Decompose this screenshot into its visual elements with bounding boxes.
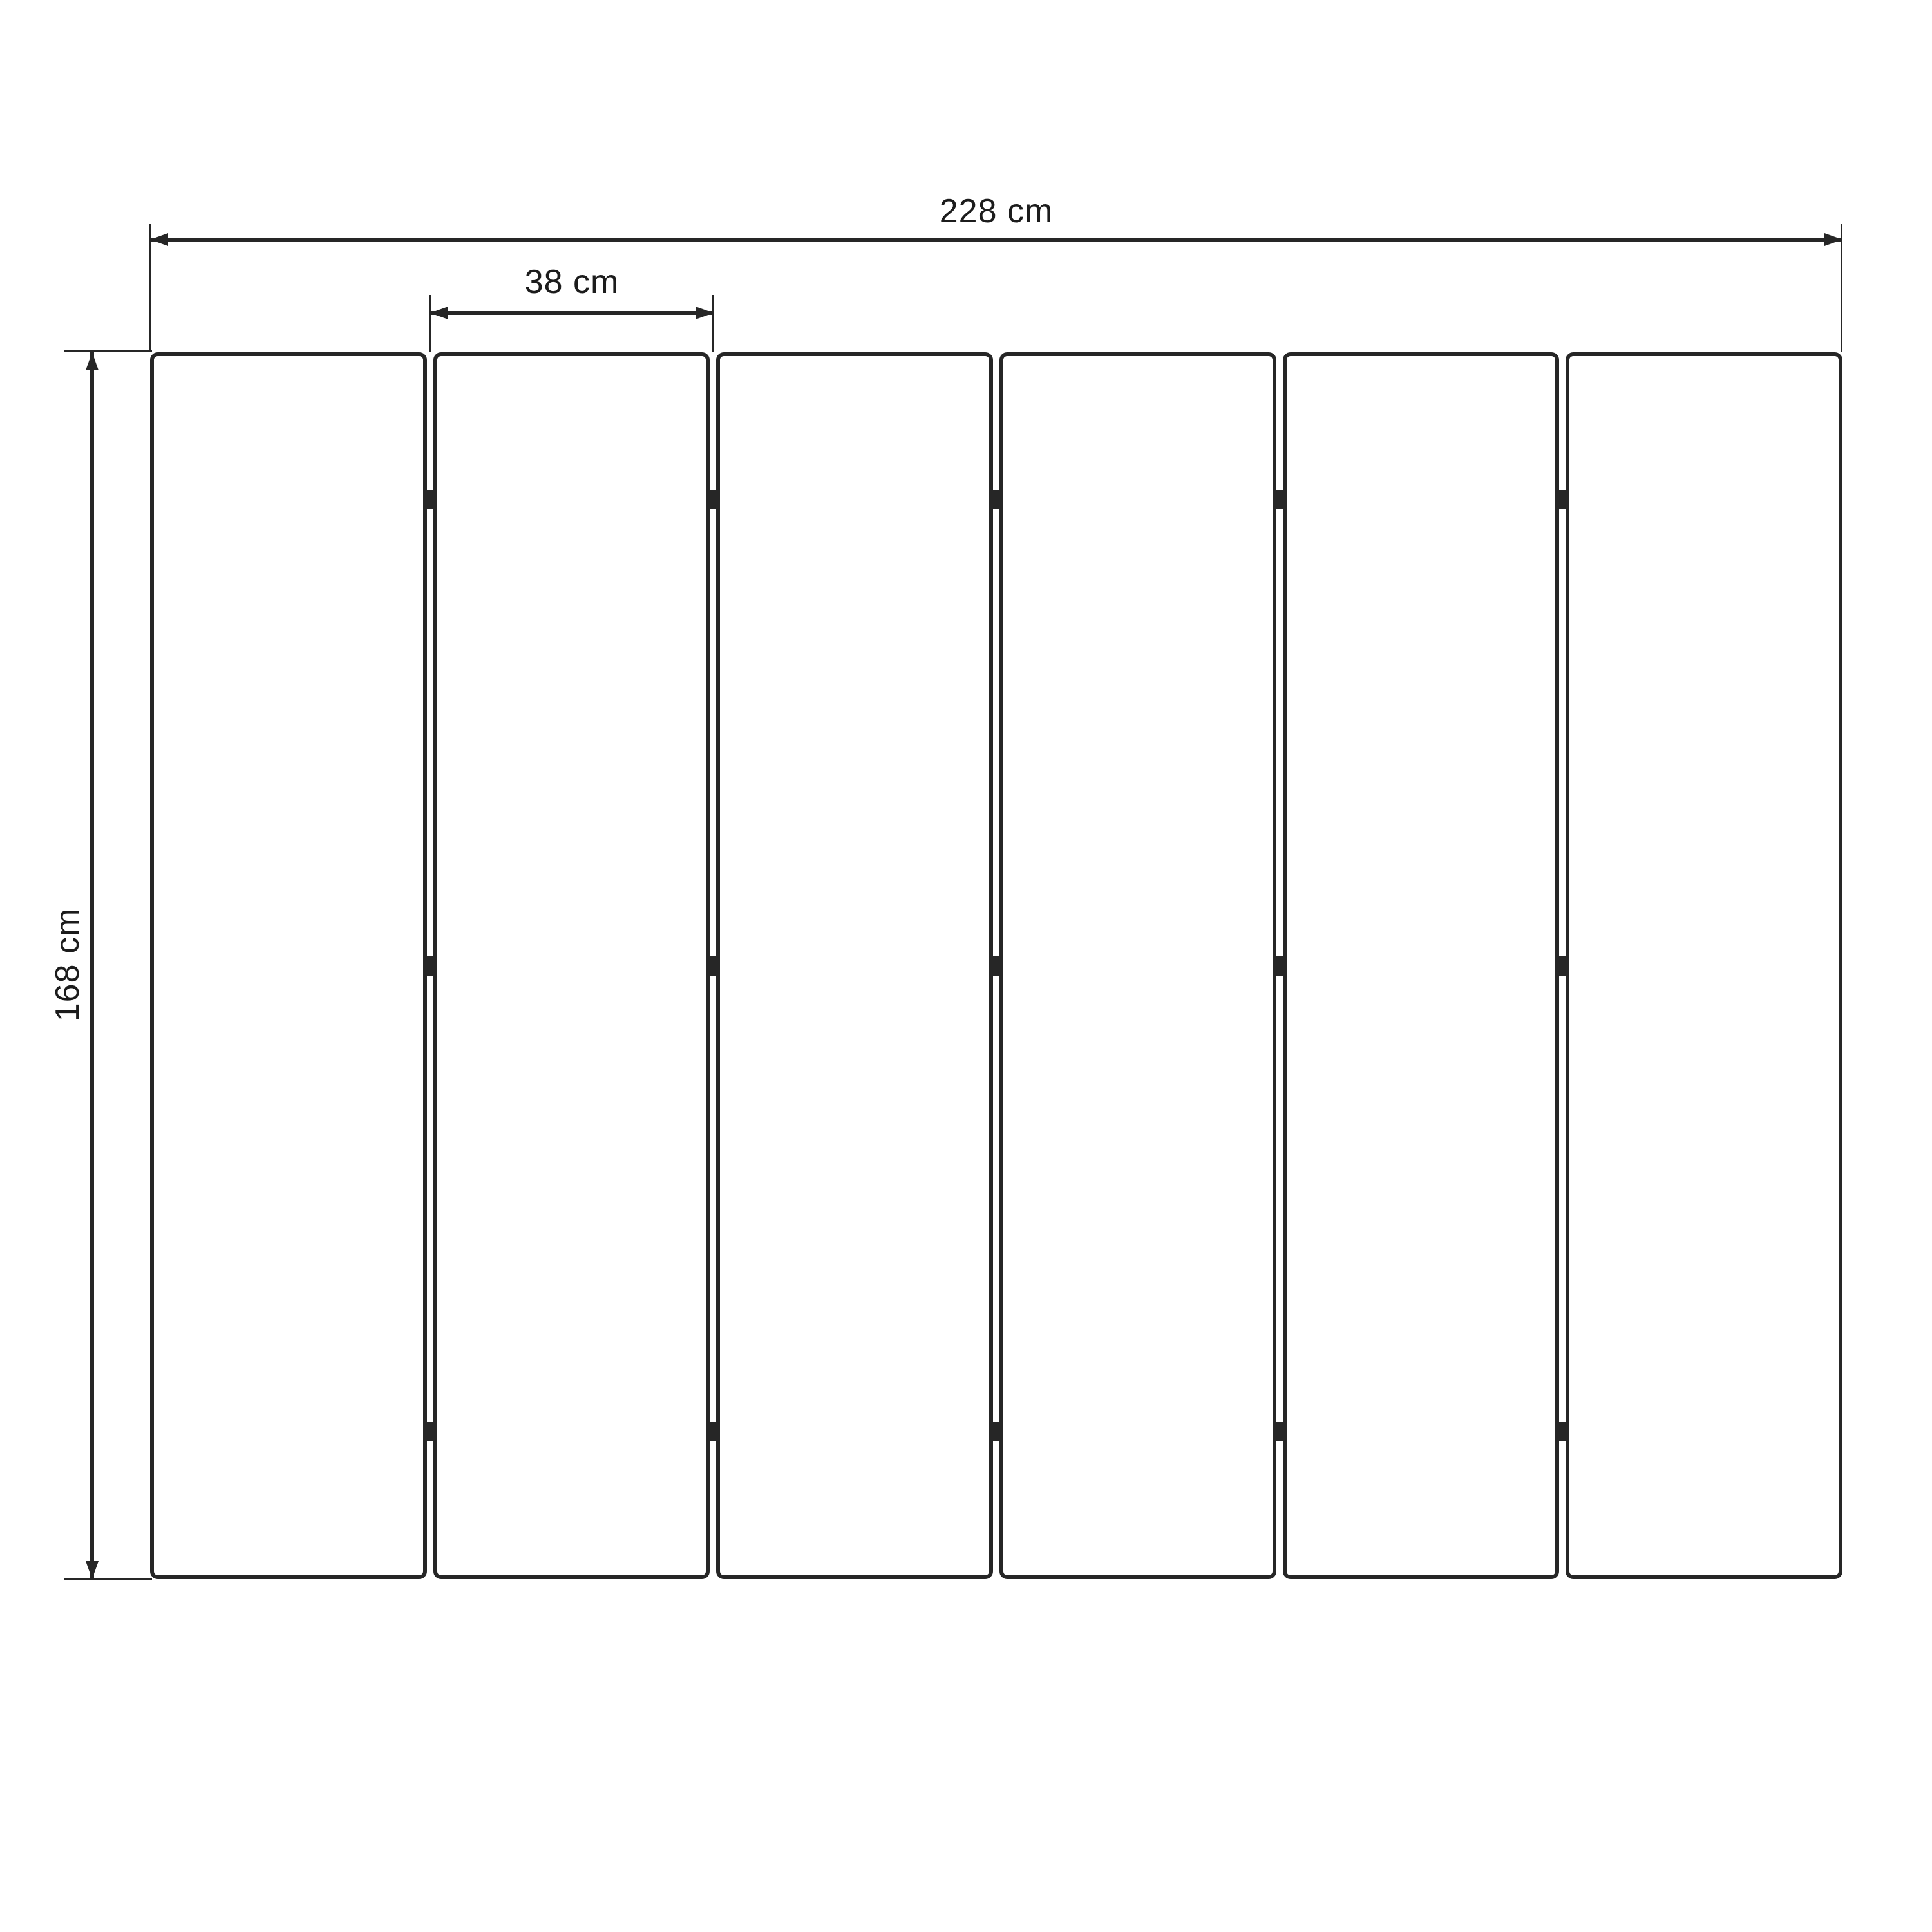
panel bbox=[1283, 352, 1560, 1579]
hinge bbox=[425, 956, 435, 976]
dimension-drawing: 228 cm 38 cm 168 cm bbox=[0, 0, 1932, 1932]
hinge bbox=[425, 490, 435, 509]
panel bbox=[150, 352, 427, 1579]
extension-line bbox=[429, 295, 431, 352]
arrowhead-left-icon bbox=[150, 233, 168, 246]
hinge bbox=[425, 1422, 435, 1441]
arrowhead-right-icon bbox=[696, 307, 714, 319]
dimension-line bbox=[430, 311, 714, 315]
arrowhead-left-icon bbox=[430, 307, 448, 319]
hinge bbox=[1557, 490, 1567, 509]
panel bbox=[433, 352, 710, 1579]
panel bbox=[999, 352, 1276, 1579]
hinge bbox=[1274, 1422, 1285, 1441]
hinge bbox=[991, 956, 1001, 976]
total-width-label: 228 cm bbox=[150, 192, 1842, 231]
hinge bbox=[708, 490, 718, 509]
extension-line bbox=[712, 295, 714, 352]
hinge bbox=[708, 956, 718, 976]
dimension-line bbox=[90, 352, 94, 1579]
hinge bbox=[1274, 956, 1285, 976]
extension-line bbox=[64, 1578, 152, 1580]
hinge bbox=[991, 490, 1001, 509]
arrowhead-up-icon bbox=[86, 352, 99, 370]
arrowhead-down-icon bbox=[86, 1561, 99, 1579]
hinge bbox=[1557, 1422, 1567, 1441]
panel-width-label: 38 cm bbox=[430, 263, 714, 301]
hinge bbox=[1557, 956, 1567, 976]
hinge bbox=[708, 1422, 718, 1441]
panel bbox=[1566, 352, 1842, 1579]
arrowhead-right-icon bbox=[1824, 233, 1842, 246]
panel bbox=[716, 352, 993, 1579]
dimension-line bbox=[150, 238, 1842, 241]
hinge bbox=[1274, 490, 1285, 509]
extension-line bbox=[64, 350, 152, 352]
hinge bbox=[991, 1422, 1001, 1441]
